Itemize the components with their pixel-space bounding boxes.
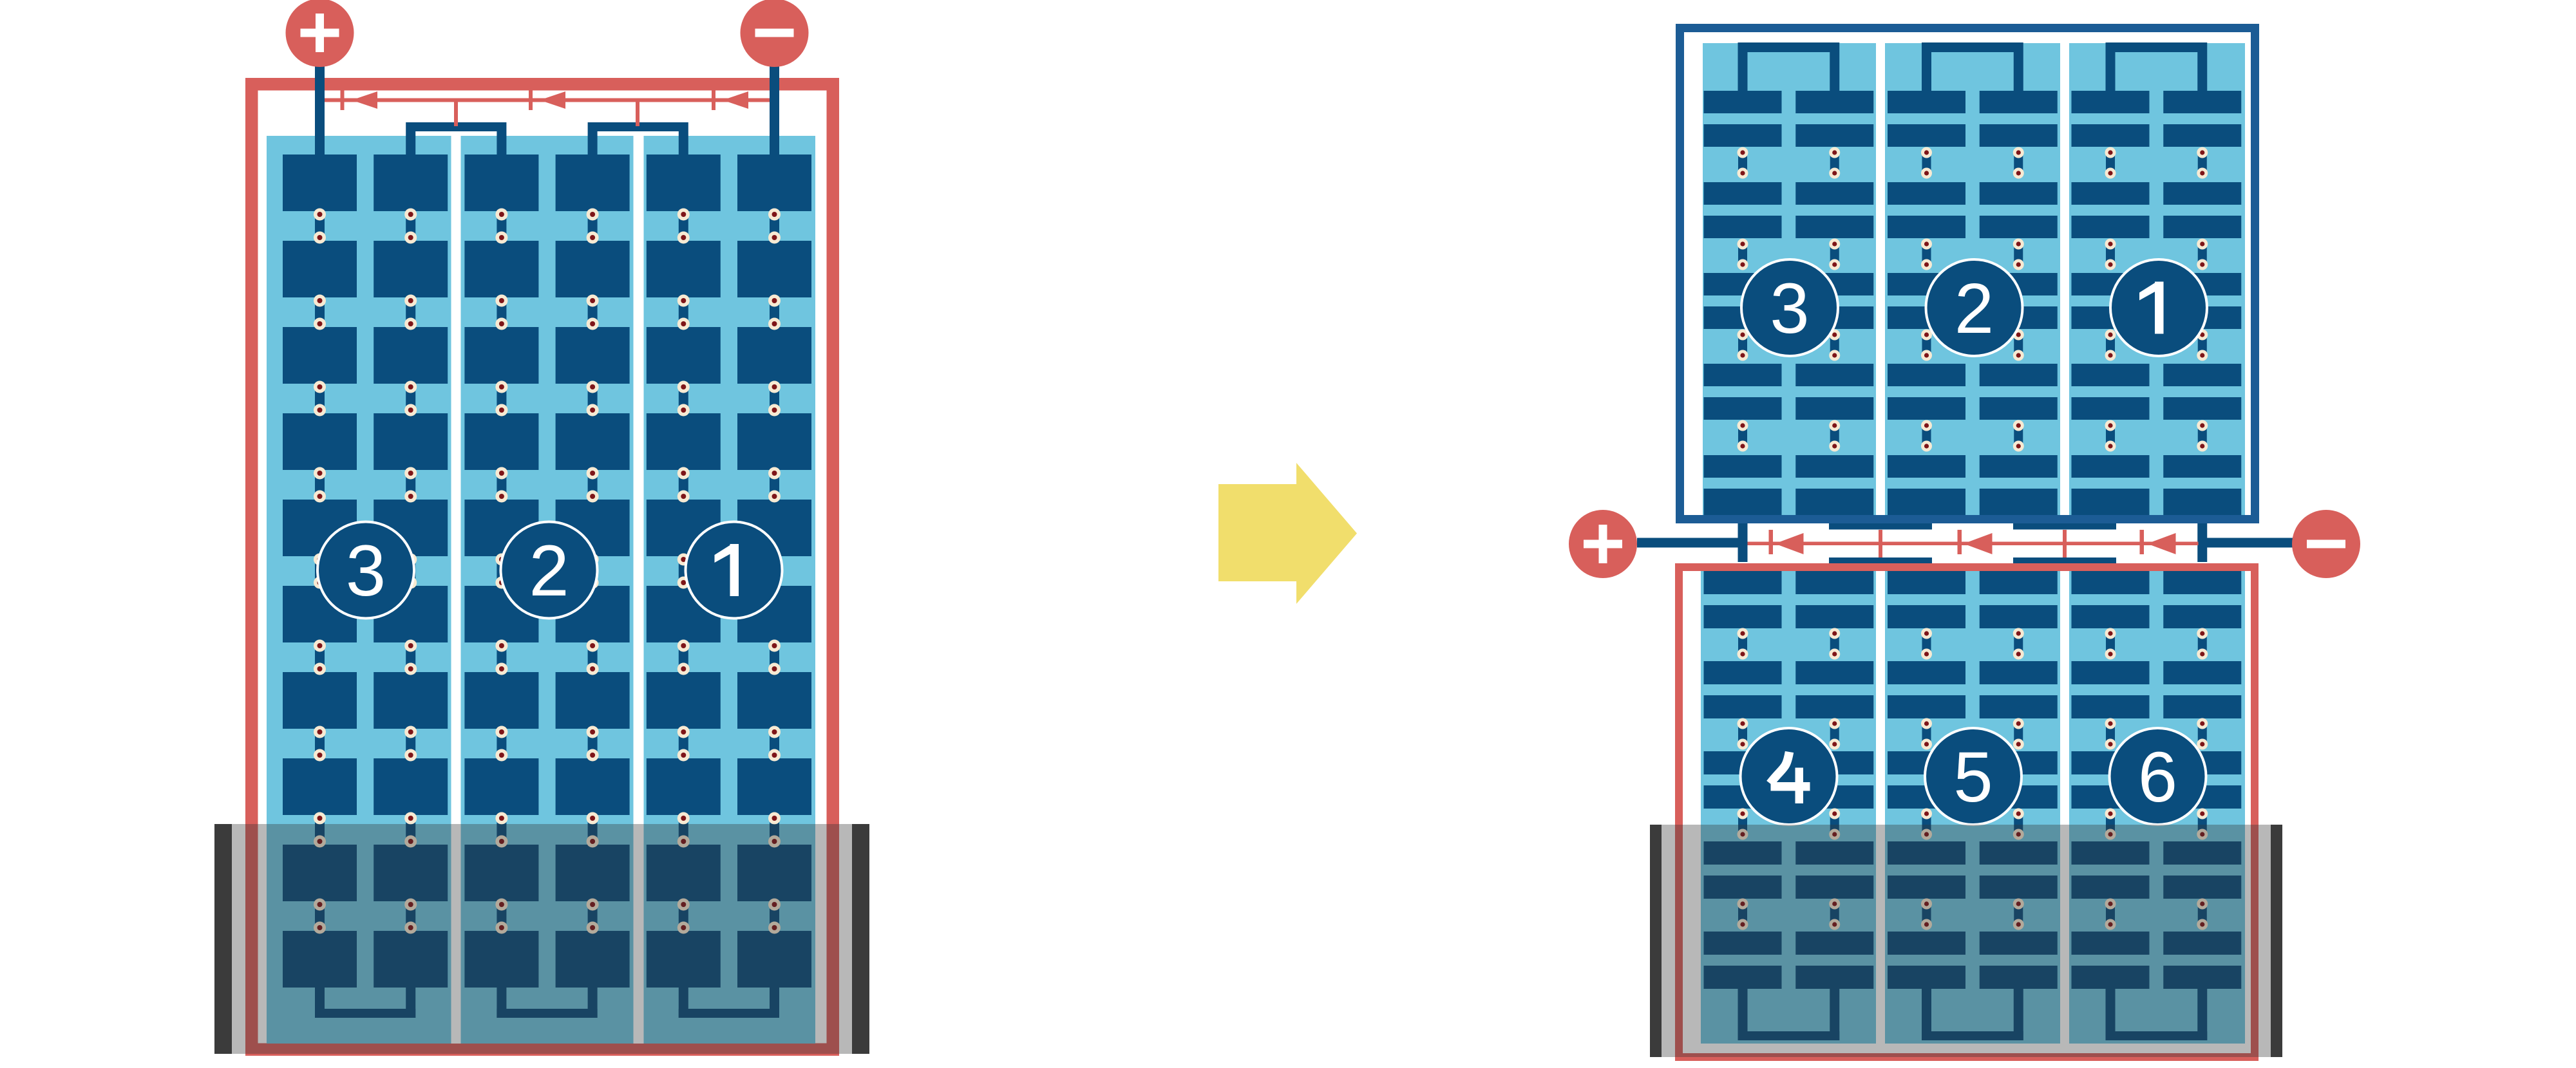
svg-text:5: 5 bbox=[1953, 738, 1993, 817]
svg-text:3: 3 bbox=[1770, 269, 1809, 348]
svg-text:2: 2 bbox=[529, 530, 569, 611]
svg-text:3: 3 bbox=[346, 530, 386, 611]
svg-text:2: 2 bbox=[1955, 269, 1994, 348]
svg-text:6: 6 bbox=[2138, 738, 2177, 817]
